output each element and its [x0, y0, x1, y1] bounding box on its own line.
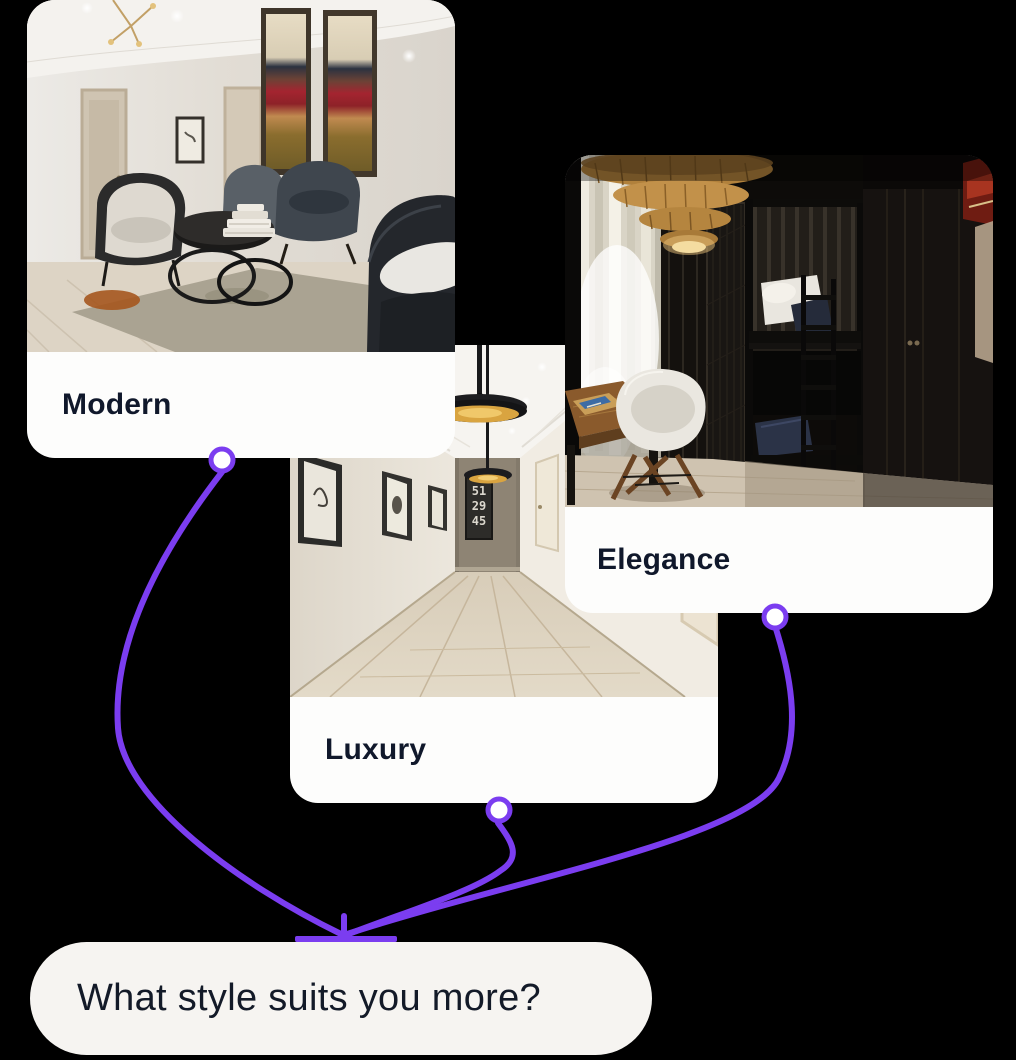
poster-number-2: 29	[472, 499, 486, 513]
style-card-modern[interactable]: Modern	[27, 0, 455, 458]
card-label-luxury: Luxury	[290, 697, 718, 803]
question-text: What style suits you more?	[77, 977, 541, 1020]
poster-number-1: 51	[472, 484, 486, 498]
luxury-connector-line	[346, 823, 513, 935]
question-bubble: What style suits you more?	[30, 942, 652, 1055]
card-label-modern: Modern	[27, 352, 455, 458]
poster-number-3: 45	[472, 514, 486, 528]
page-canvas: 51 29 45	[0, 0, 1016, 1060]
modern-photo	[27, 0, 455, 352]
card-label-elegance: Elegance	[565, 507, 993, 613]
elegance-photo	[565, 155, 993, 507]
style-card-elegance[interactable]: Elegance	[565, 155, 993, 613]
